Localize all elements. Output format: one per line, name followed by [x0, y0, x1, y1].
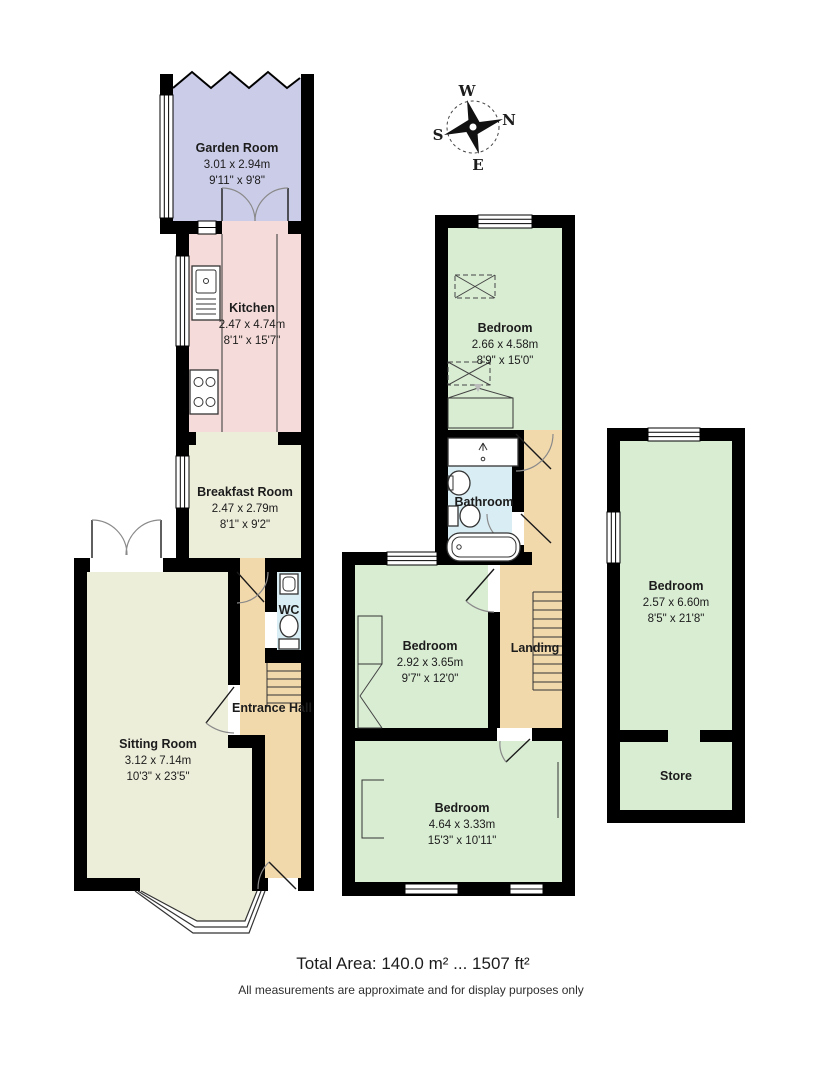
- kitchen-rear-window: [198, 221, 216, 234]
- bedroom-1-metric: 2.66 x 4.58m: [472, 339, 538, 351]
- bathroom-label: Bathroom: [454, 495, 513, 509]
- bedroom-2-imperial: 9'7" x 12'0": [402, 673, 459, 685]
- first-floor: Bedroom 2.66 x 4.58m 8'9" x 15'0" Bathro…: [342, 215, 575, 896]
- wc-door: [265, 612, 277, 648]
- sitting-room-french-doors: [90, 520, 163, 572]
- breakfast-room-imperial: 8'1" x 9'2": [220, 519, 270, 531]
- basin-icon: [448, 471, 470, 495]
- landing-label: Landing: [511, 641, 560, 655]
- garden-room-label: Garden Room: [196, 141, 279, 155]
- breakfast-room-label: Breakfast Room: [197, 485, 293, 499]
- bedroom-3-window-right: [510, 884, 543, 894]
- breakfast-room-fill: [176, 432, 314, 572]
- total-area-text: Total Area: 140.0 m² ... 1507 ft²: [296, 954, 530, 973]
- bedroom-4-top-window: [648, 428, 700, 441]
- sitting-room-metric: 3.12 x 7.14m: [125, 755, 191, 767]
- bedroom-2-window: [387, 552, 437, 565]
- floor-plan-page: Garden Room 3.01 x 2.94m 9'11" x 9'8" Ki…: [0, 0, 823, 1080]
- entrance-hall-label: Entrance Hall: [232, 701, 312, 715]
- wc-basin-icon: [280, 574, 298, 594]
- compass-hub: [470, 124, 477, 131]
- shower-icon: [448, 438, 518, 466]
- garden-room-window: [160, 95, 173, 218]
- sink-icon: [192, 266, 220, 320]
- floor-plan-svg: Garden Room 3.01 x 2.94m 9'11" x 9'8" Ki…: [0, 0, 823, 1080]
- compass-west-label: W: [458, 82, 477, 100]
- bedroom-3-imperial: 15'3" x 10'11": [428, 835, 497, 847]
- compass-north-label: N: [502, 111, 516, 129]
- compass-south-label: S: [433, 126, 444, 144]
- bedroom-1-imperial: 8'9" x 15'0": [477, 355, 534, 367]
- garden-room-imperial: 9'11" x 9'8": [209, 175, 265, 187]
- breakfast-room-metric: 2.47 x 2.79m: [212, 503, 278, 515]
- hob-icon: [190, 370, 218, 414]
- bedroom-3-metric: 4.64 x 3.33m: [429, 819, 495, 831]
- bedroom-4-label: Bedroom: [649, 579, 704, 593]
- store-label: Store: [660, 769, 692, 783]
- ground-floor: Garden Room 3.01 x 2.94m 9'11" x 9'8" Ki…: [74, 58, 314, 933]
- footer: Total Area: 140.0 m² ... 1507 ft² All me…: [238, 954, 584, 997]
- kitchen-metric: 2.47 x 4.74m: [219, 319, 285, 331]
- garden-room-metric: 3.01 x 2.94m: [204, 159, 270, 171]
- kitchen-imperial: 8'1" x 15'7": [224, 335, 281, 347]
- compass-rose: W N S E: [433, 82, 517, 174]
- sitting-room-label: Sitting Room: [119, 737, 197, 751]
- wc-label: WC: [279, 603, 300, 617]
- bedroom-3-window-left: [405, 884, 458, 894]
- wc-toilet-icon: [279, 615, 299, 649]
- second-floor: Bedroom 2.57 x 6.60m 8'5" x 21'8" Store: [607, 428, 745, 823]
- disclaimer-text: All measurements are approximate and for…: [238, 983, 584, 997]
- kitchen-label: Kitchen: [229, 301, 275, 315]
- bedroom-3-label: Bedroom: [435, 801, 490, 815]
- second-floor-room-fills: [620, 441, 732, 814]
- compass-east-label: E: [472, 156, 483, 174]
- bedroom-1-label: Bedroom: [478, 321, 533, 335]
- bedroom-4-side-window: [607, 512, 620, 563]
- sitting-room-imperial: 10'3" x 23'5": [126, 771, 189, 783]
- bedroom-2-metric: 2.92 x 3.65m: [397, 657, 463, 669]
- bedroom-4-metric: 2.57 x 6.60m: [643, 597, 709, 609]
- bedroom-1-window: [478, 215, 532, 228]
- kitchen-window: [176, 256, 189, 346]
- bedroom-4-imperial: 8'5" x 21'8": [648, 613, 705, 625]
- breakfast-room-window: [176, 456, 189, 508]
- bathtub-icon: [447, 533, 520, 561]
- bedroom-2-label: Bedroom: [403, 639, 458, 653]
